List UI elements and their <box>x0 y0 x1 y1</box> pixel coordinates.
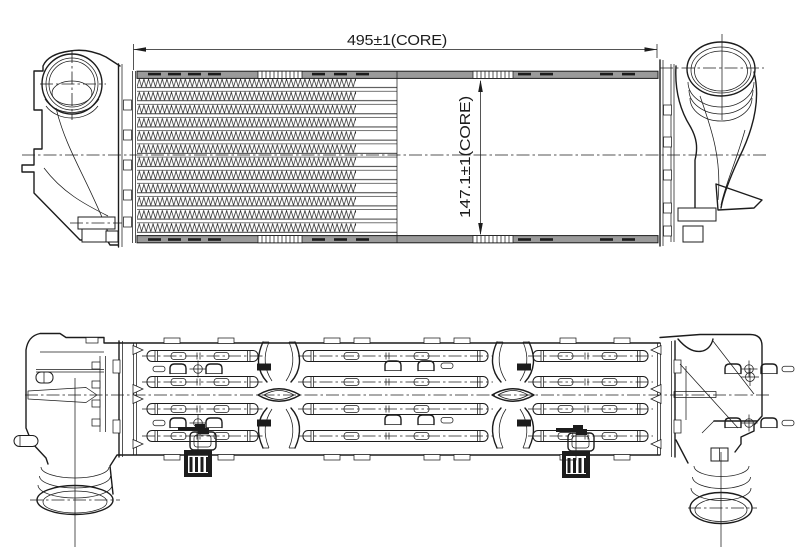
core-height-dimension-label: 147.1±1(CORE) <box>458 96 474 218</box>
beam-segment <box>142 404 263 415</box>
beam-segment <box>298 351 493 362</box>
inlet-port-left <box>40 50 106 120</box>
mounting-pin <box>14 436 38 447</box>
clip <box>441 363 453 369</box>
beam-segment <box>528 351 653 362</box>
beam-segment <box>142 377 263 388</box>
tank-contour-line <box>678 339 713 351</box>
clip-cluster <box>725 361 794 378</box>
front-view: 495±1(CORE) 147.1±1(CORE) <box>22 33 768 247</box>
mounting-bracket <box>678 208 716 221</box>
mounting-bracket <box>82 229 107 242</box>
clip-cluster <box>725 415 794 432</box>
mounting-bracket <box>683 226 703 242</box>
clip <box>418 361 434 371</box>
beam-segment <box>528 431 653 442</box>
arrowhead-up-icon <box>478 80 483 92</box>
arrowhead-down-icon <box>478 223 483 235</box>
clip <box>385 415 401 425</box>
outlet-port-left-plan <box>30 378 120 547</box>
clip <box>385 361 401 371</box>
core-fins <box>137 78 356 235</box>
dimension-core-height: 147.1±1(CORE) <box>458 80 483 236</box>
core-flange-right <box>660 60 674 246</box>
left-tank-front <box>22 50 136 247</box>
beam-segment <box>298 404 493 415</box>
arrowhead-right-icon <box>645 47 658 52</box>
arrowhead-left-icon <box>134 47 147 52</box>
clip-cluster <box>153 361 222 378</box>
side-plate-left <box>113 341 143 457</box>
outlet-port-right-plan <box>688 452 757 547</box>
mounting-pin <box>36 372 53 383</box>
left-tank-plan <box>14 334 120 548</box>
alignment-target <box>741 368 759 386</box>
right-tank-front <box>660 34 764 246</box>
beam-segment <box>298 377 493 388</box>
technical-drawing-page: 495±1(CORE) 147.1±1(CORE) <box>0 0 800 555</box>
beam-segment <box>142 351 263 362</box>
clip <box>418 415 434 425</box>
tank-contour-line <box>56 108 108 232</box>
beam-segment <box>528 377 653 388</box>
core-front <box>137 71 658 243</box>
clip <box>441 418 453 424</box>
dimension-core-width: 495±1(CORE) <box>134 33 658 70</box>
beam-segment <box>298 431 493 442</box>
plan-view <box>14 334 794 548</box>
core-width-dimension-label: 495±1(CORE) <box>347 33 447 49</box>
bellows-right <box>492 342 534 448</box>
beam-segment <box>528 404 653 415</box>
technical-drawing-canvas: 495±1(CORE) 147.1±1(CORE) <box>0 0 800 555</box>
